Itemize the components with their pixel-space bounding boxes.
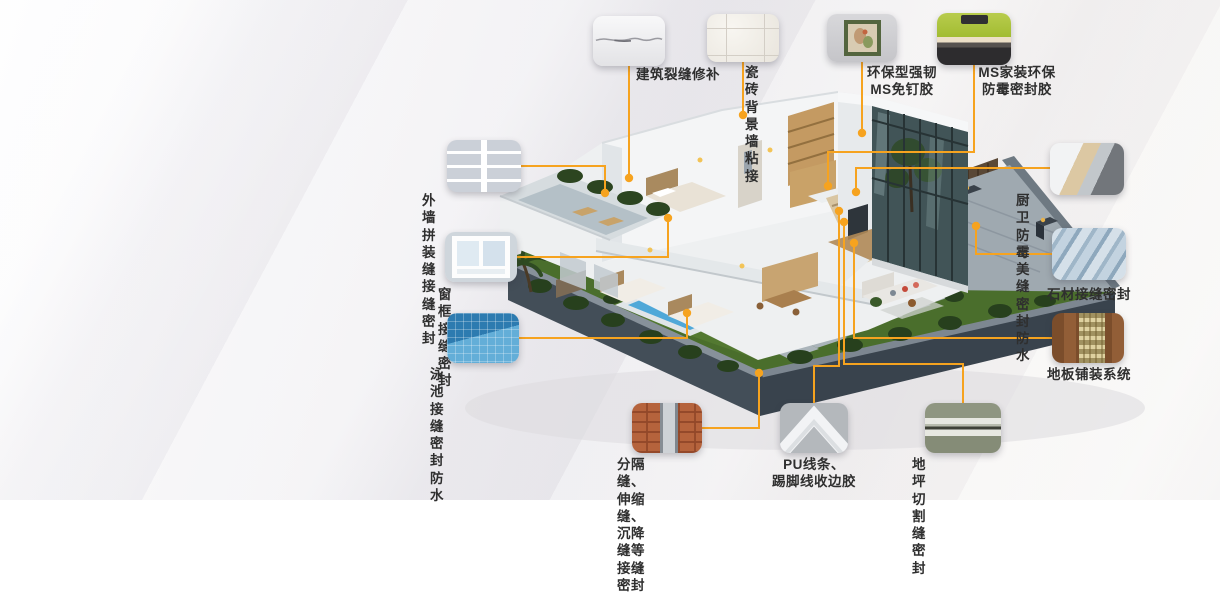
product-application-diagram: 建筑裂缝修补 瓷砖 背景墙粘接 环保型强韧 MS免钉胶 MS家装环保 防霉密封胶… — [0, 0, 1220, 500]
framed-picture-photo — [827, 14, 897, 62]
callout-label: 厨卫防霉美缝密封防水 — [1016, 192, 1030, 365]
garden-plants — [528, 279, 1056, 372]
brick-expansion-joint-photo — [632, 403, 702, 453]
callout-label: 石材接缝密封 — [1014, 286, 1164, 303]
callout-label: 瓷砖 背景墙粘接 — [745, 64, 759, 185]
concrete-cut-joint-photo — [925, 403, 1001, 453]
wood-floor-adhesive-photo — [1052, 313, 1124, 363]
pu-molding-photo — [780, 403, 848, 453]
pool-mosaic-photo — [447, 313, 519, 363]
wall-crack-photo — [593, 16, 665, 66]
outdoor-dining-set — [782, 266, 820, 288]
callout-label: 地坪切割缝密封 — [912, 456, 926, 577]
exterior-panel-photo — [447, 140, 521, 192]
callout-dots — [601, 111, 980, 377]
callout-label: 外墙拼装缝接缝密封 — [422, 192, 436, 347]
window-frame-photo — [445, 232, 517, 282]
callout-label: 泳池接缝密封防水 — [430, 366, 444, 504]
glass-facade — [838, 92, 968, 293]
callout-label: 建筑裂缝修补 — [616, 66, 740, 83]
kitchen-backsplash-photo — [937, 13, 1011, 65]
pool — [615, 275, 765, 336]
callout-label: MS家装环保 防霉密封胶 — [957, 64, 1077, 99]
villa-house — [500, 92, 968, 360]
stone-steps-photo — [1052, 228, 1126, 280]
terrace-plants — [557, 169, 670, 216]
callout-label: PU线条、 踢脚线收边胶 — [754, 456, 874, 491]
callout-label: 环保型强韧 MS免钉胶 — [842, 64, 962, 99]
callout-label: 地板铺装系统 — [1014, 366, 1164, 383]
callout-label: 分隔缝、伸缩缝、 沉降缝等接缝密封 — [617, 456, 645, 594]
tile-wall-photo — [707, 14, 779, 62]
kitchen-counter-photo — [1050, 143, 1124, 195]
